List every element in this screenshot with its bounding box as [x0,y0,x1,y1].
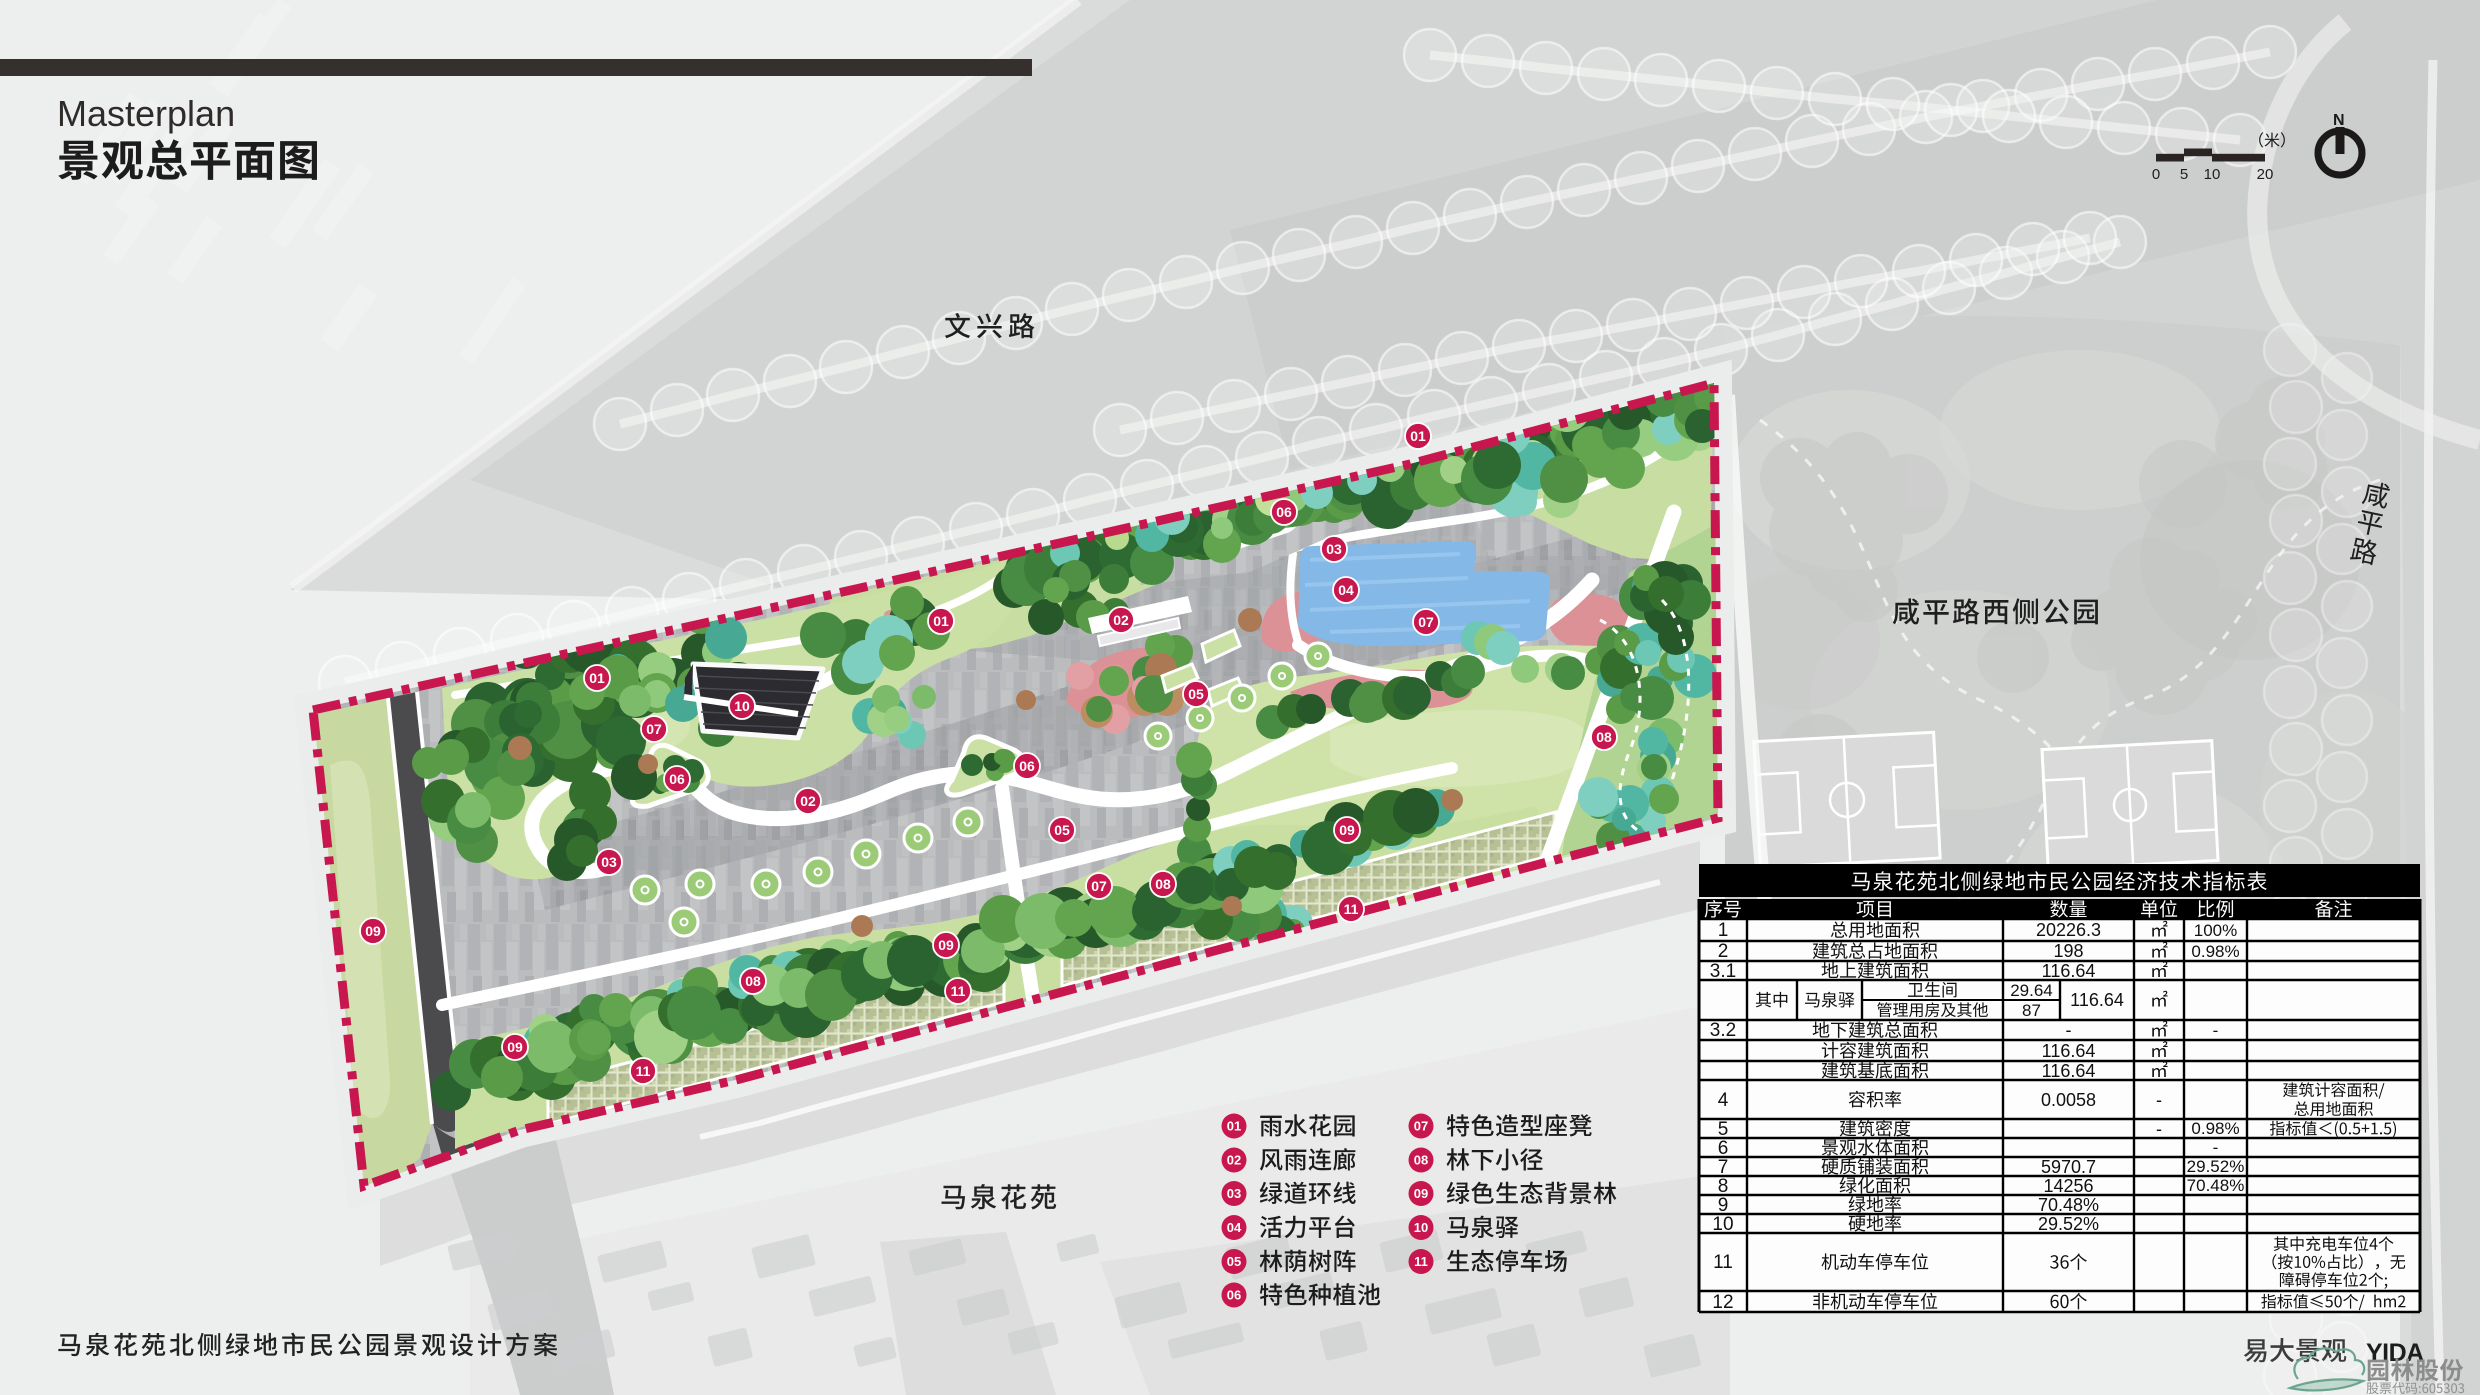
svg-text:07: 07 [1414,1119,1428,1134]
svg-text:116.64: 116.64 [2042,1041,2096,1061]
svg-text:-: - [2213,1138,2219,1157]
svg-text:08: 08 [1414,1153,1428,1168]
svg-text:29.52%: 29.52% [2187,1157,2245,1176]
svg-text:4: 4 [1718,1090,1729,1111]
svg-text:11: 11 [1414,1254,1428,1269]
svg-text:11: 11 [1713,1252,1733,1273]
svg-text:20226.3: 20226.3 [2036,920,2101,940]
svg-text:8: 8 [1718,1176,1729,1197]
svg-text:5970.7: 5970.7 [2041,1157,2096,1177]
svg-text:70.48%: 70.48% [2187,1176,2245,1195]
svg-text:7: 7 [1718,1157,1729,1178]
svg-text:116.64: 116.64 [2070,990,2124,1010]
svg-text:04: 04 [1227,1220,1242,1235]
svg-text:03: 03 [1227,1186,1241,1201]
svg-text:10: 10 [2204,166,2221,183]
svg-text:3.2: 3.2 [1710,1020,1736,1041]
svg-text:01: 01 [1227,1119,1241,1134]
svg-text:-: - [2156,1119,2162,1139]
svg-text:05: 05 [1227,1254,1241,1269]
svg-text:5: 5 [2180,166,2188,183]
svg-text:6: 6 [1718,1138,1729,1159]
svg-text:-: - [2156,1090,2162,1110]
svg-text:0.0058: 0.0058 [2041,1090,2096,1110]
svg-text:100%: 100% [2194,921,2237,940]
svg-text:87: 87 [2022,1001,2041,1020]
svg-text:-: - [2213,1021,2219,1040]
svg-text:12: 12 [1712,1292,1733,1313]
svg-text:0.98%: 0.98% [2191,942,2239,961]
svg-text:Masterplan: Masterplan [57,93,235,134]
svg-text:5: 5 [1718,1119,1729,1140]
svg-text:1: 1 [1718,920,1729,941]
svg-text:116.64: 116.64 [2042,961,2096,981]
svg-text:N: N [2333,112,2345,129]
svg-text:20: 20 [2257,166,2274,183]
svg-text:2: 2 [1718,941,1729,962]
svg-text:09: 09 [1414,1186,1428,1201]
svg-text:02: 02 [1227,1153,1241,1168]
svg-text:70.48%: 70.48% [2038,1195,2099,1215]
svg-text:0: 0 [2152,166,2160,183]
svg-text:29.52%: 29.52% [2038,1214,2099,1234]
svg-text:116.64: 116.64 [2042,1061,2096,1081]
svg-text:29.64: 29.64 [2010,981,2053,1000]
svg-text:0.98%: 0.98% [2191,1119,2239,1138]
svg-text:9: 9 [1718,1195,1729,1216]
svg-text:10: 10 [1712,1214,1733,1235]
svg-text:-: - [2066,1020,2072,1040]
svg-text:06: 06 [1227,1288,1241,1303]
svg-text:10: 10 [1414,1220,1428,1235]
svg-text:198: 198 [2053,941,2083,961]
svg-text:YIDA: YIDA [2366,1339,2424,1367]
svg-text:14256: 14256 [2043,1176,2093,1196]
svg-text:3.1: 3.1 [1710,961,1736,982]
